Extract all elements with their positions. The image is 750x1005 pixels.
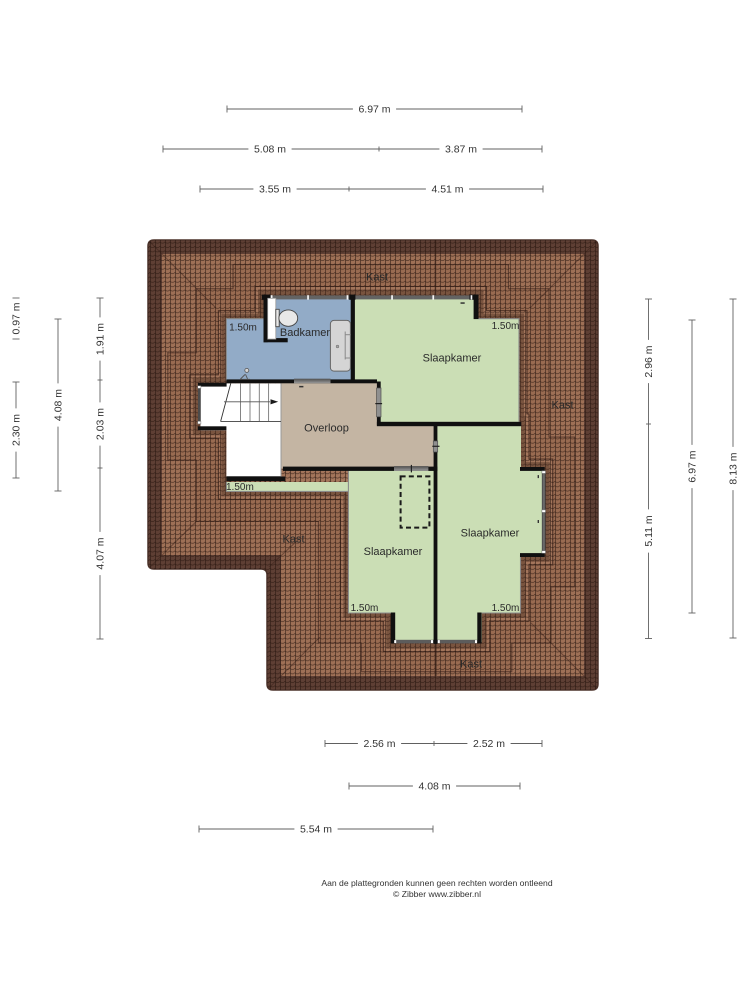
svg-text:8.13 m: 8.13 m [728, 452, 740, 484]
svg-text:2.30 m: 2.30 m [11, 414, 23, 446]
svg-text:2.52 m: 2.52 m [473, 738, 505, 750]
svg-text:2.03 m: 2.03 m [95, 408, 107, 440]
svg-text:5.54 m: 5.54 m [300, 824, 332, 836]
svg-text:3.87 m: 3.87 m [445, 144, 477, 156]
svg-text:© Zibber www.zibber.nl: © Zibber www.zibber.nl [393, 889, 481, 899]
svg-text:1.50m: 1.50m [492, 603, 520, 614]
svg-text:4.08 m: 4.08 m [418, 781, 450, 793]
svg-text:1.91 m: 1.91 m [95, 323, 107, 355]
svg-text:6.97 m: 6.97 m [687, 450, 699, 482]
svg-text:2.56 m: 2.56 m [363, 738, 395, 750]
svg-text:4.07 m: 4.07 m [95, 537, 107, 569]
svg-text:1.50m: 1.50m [229, 323, 257, 334]
svg-text:1.50m: 1.50m [226, 482, 254, 493]
svg-text:Aan de plattegronden kunnen ge: Aan de plattegronden kunnen geen rechten… [321, 878, 552, 888]
svg-text:5.08 m: 5.08 m [254, 144, 286, 156]
svg-text:6.97 m: 6.97 m [358, 104, 390, 116]
svg-text:Kast: Kast [282, 533, 304, 545]
svg-text:Badkamer: Badkamer [280, 327, 330, 339]
svg-text:Kast: Kast [366, 272, 388, 284]
svg-text:4.51 m: 4.51 m [431, 184, 463, 196]
svg-text:4.08 m: 4.08 m [53, 389, 65, 421]
svg-text:Slaapkamer: Slaapkamer [423, 353, 482, 365]
svg-text:Kast: Kast [460, 659, 482, 671]
svg-text:Slaapkamer: Slaapkamer [461, 528, 520, 540]
svg-text:3.55 m: 3.55 m [259, 184, 291, 196]
svg-text:2.96 m: 2.96 m [643, 345, 655, 377]
svg-text:Slaapkamer: Slaapkamer [364, 546, 423, 558]
svg-text:Kast: Kast [551, 400, 573, 412]
svg-text:5.11 m: 5.11 m [643, 515, 655, 547]
svg-text:1.50m: 1.50m [351, 603, 379, 614]
svg-text:0.97 m: 0.97 m [11, 302, 23, 334]
svg-text:Overloop: Overloop [304, 422, 349, 434]
svg-text:1.50m: 1.50m [492, 321, 520, 332]
